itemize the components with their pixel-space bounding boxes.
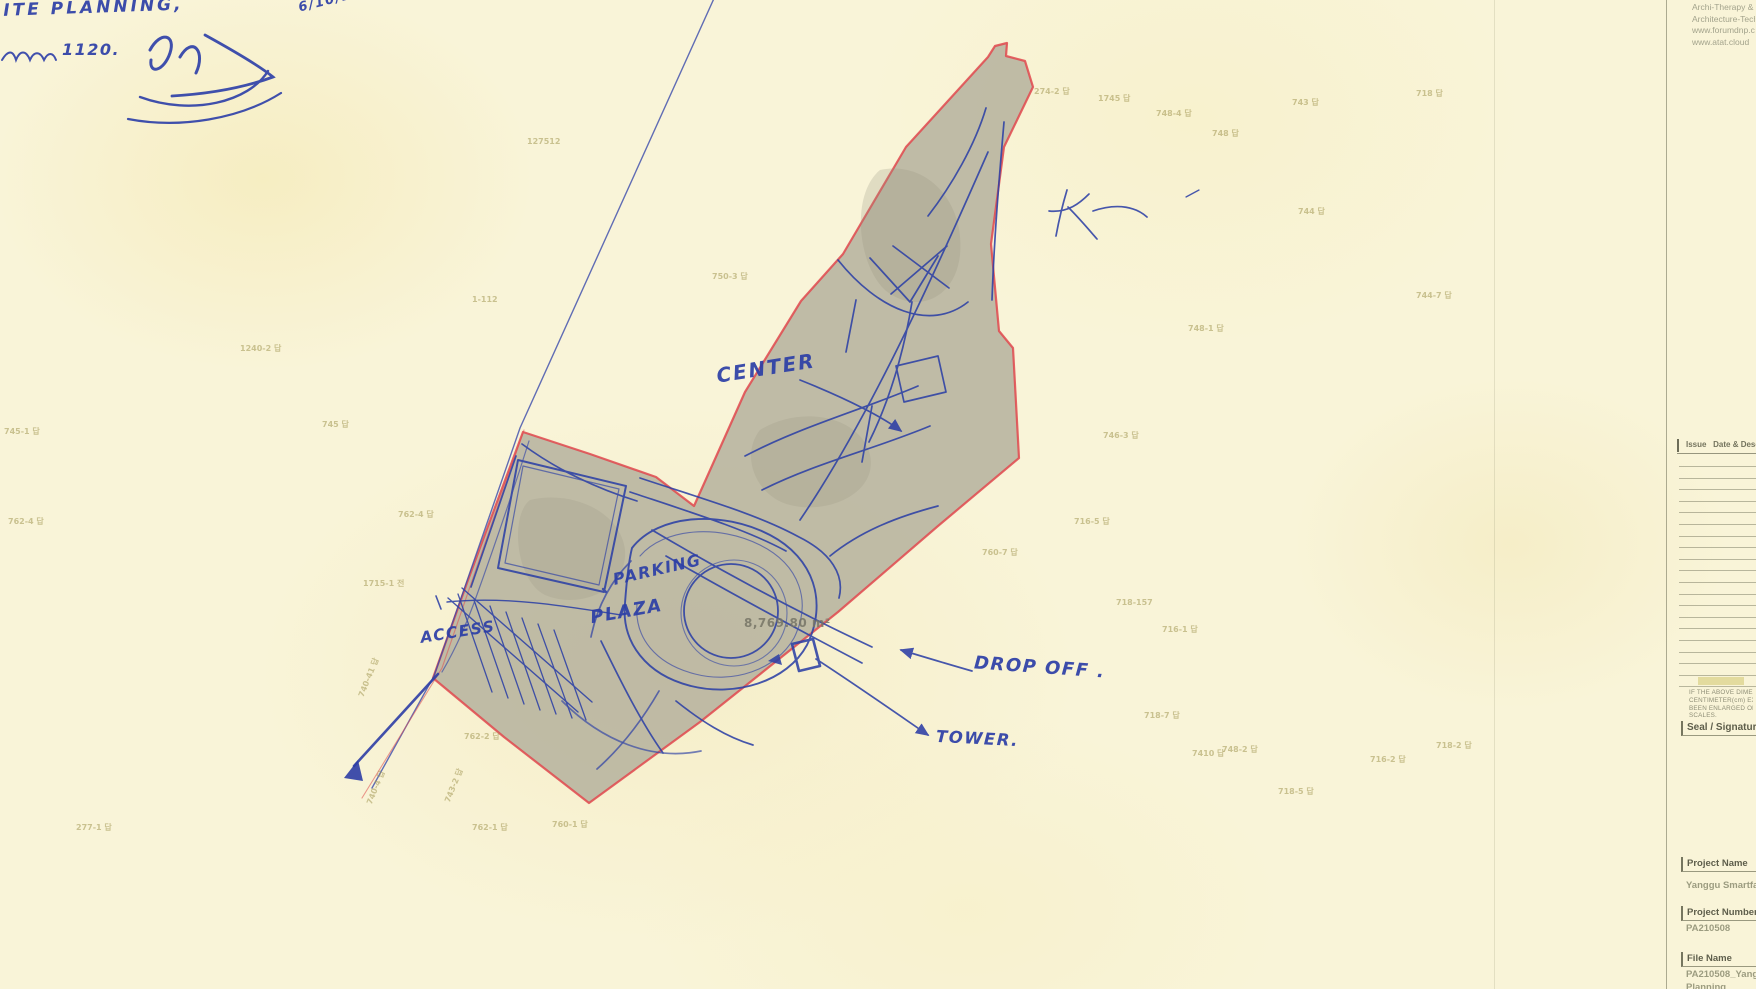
disclaimer-line: SCALES. [1689, 712, 1753, 720]
revision-row-rule [1679, 547, 1756, 548]
revision-row-rule [1679, 652, 1756, 653]
project-name-value: Yanggu Smartfarm [1686, 880, 1756, 891]
sheet-edge-line [1494, 0, 1495, 989]
revision-col-issue: Issue [1686, 440, 1706, 449]
revision-table-tick [1677, 439, 1679, 452]
firm-info-line: Archi-Therapy & [1692, 2, 1755, 14]
revision-row-rule [1679, 675, 1756, 676]
scanned-site-plan-sheet: SITE PLANNING, 1120. 6/10/2 CENTER PARKI… [0, 0, 1756, 989]
parcel-number: 127512 [527, 137, 560, 146]
parcel-number: 762-1 답 [472, 822, 508, 833]
site-sketch-svg [0, 0, 1756, 989]
revision-row-rule [1679, 605, 1756, 606]
seal-signature-header: Seal / Signature [1681, 721, 1756, 736]
site-area-label: 8,769.80 m² [744, 616, 831, 630]
parcel-number: 762-4 답 [398, 509, 434, 520]
parcel-number: 716-5 답 [1074, 516, 1110, 527]
file-name-label: File Name [1681, 952, 1756, 967]
parcel-number: 744-7 답 [1416, 290, 1452, 301]
titleblock-border-line [1666, 0, 1667, 989]
revision-row-rule [1679, 686, 1756, 687]
memo-note: 1120. [62, 40, 120, 59]
parcel-number: 1745 답 [1098, 93, 1130, 104]
parcel-number: 277-1 답 [76, 822, 112, 833]
parcel-number: 760-7 답 [982, 547, 1018, 558]
firm-info-block: Archi-Therapy &Architecture-Technwww.for… [1692, 2, 1755, 48]
file-name-value-line2: Planning [1686, 982, 1756, 989]
k-mark [1049, 190, 1199, 239]
scale-disclaimer-note: IF THE ABOVE DIMENSIONCENTIMETER(cm) EXA… [1689, 689, 1753, 720]
revision-row-rule [1679, 617, 1756, 618]
parcel-number: 1715-1 전 [363, 578, 404, 589]
parcel-number: 744 답 [1298, 206, 1325, 217]
parcel-number: 743 답 [1292, 97, 1319, 108]
signature-scribble [2, 35, 281, 123]
parcel-number: 718 답 [1416, 88, 1443, 99]
revision-row-rule [1679, 512, 1756, 513]
parcel-number: 748-1 답 [1188, 323, 1224, 334]
revision-row-rule [1679, 524, 1756, 525]
firm-info-line: www.forumdnp.com [1692, 25, 1755, 37]
dropoff-leader-arrow [901, 650, 972, 671]
revision-row-rule [1679, 663, 1756, 664]
disclaimer-line: CENTIMETER(cm) EXACTLY [1689, 697, 1753, 705]
revision-row-rule [1679, 594, 1756, 595]
parcel-number: 718-157 [1116, 598, 1153, 607]
parcel-number: 748-4 답 [1156, 108, 1192, 119]
disclaimer-line: IF THE ABOVE DIMENSION [1689, 689, 1753, 697]
parcel-number: 762-4 답 [8, 516, 44, 527]
scale-highlight-chip [1698, 677, 1744, 685]
parcel-number: 745-1 답 [4, 426, 40, 437]
parcel-number: 1240-2 답 [240, 343, 281, 354]
revision-header-underline [1677, 453, 1756, 454]
revision-row-rule [1679, 559, 1756, 560]
parcel-number: 748 답 [1212, 128, 1239, 139]
revision-col-date: Date & Descr [1713, 440, 1756, 449]
disclaimer-line: BEEN ENLARGED OR REDUC [1689, 705, 1753, 713]
revision-row-rule [1679, 628, 1756, 629]
parcel-number: 718-2 답 [1436, 740, 1472, 751]
revision-row-rule [1679, 536, 1756, 537]
parcel-number: 716-1 답 [1162, 624, 1198, 635]
parcel-number: 746-3 답 [1103, 430, 1139, 441]
parcel-number: 7410 답 [1192, 748, 1224, 759]
firm-info-line: Architecture-Techn [1692, 14, 1755, 26]
parcel-number: 748-2 답 [1222, 744, 1258, 755]
parcel-number: 745 답 [322, 419, 349, 430]
parcel-number: 274-2 답 [1034, 86, 1070, 97]
revision-row-rule [1679, 466, 1756, 467]
parcel-number: 750-3 답 [712, 271, 748, 282]
firm-info-line: www.atat.cloud [1692, 37, 1755, 49]
project-number-value: PA210508 [1686, 923, 1756, 934]
revision-row-rule [1679, 570, 1756, 571]
tower-leader-arrow [816, 659, 928, 735]
parcel-number: 760-1 답 [552, 819, 588, 830]
parcel-number: 718-5 답 [1278, 786, 1314, 797]
project-number-label: Project Number [1681, 906, 1756, 921]
parcel-number: 716-2 답 [1370, 754, 1406, 765]
revision-row-rule [1679, 640, 1756, 641]
revision-row-rule [1679, 582, 1756, 583]
revision-row-rule [1679, 501, 1756, 502]
file-name-value: PA210508_Yanggu [1686, 969, 1756, 980]
parcel-number: 1-112 [472, 295, 498, 304]
revision-table-header: Issue Date & Descr [1686, 440, 1756, 449]
parcel-number: 762-2 답 [464, 731, 500, 742]
revision-row-rule [1679, 478, 1756, 479]
revision-row-rule [1679, 489, 1756, 490]
project-name-label: Project Name [1681, 857, 1756, 872]
parcel-number: 718-7 답 [1144, 710, 1180, 721]
